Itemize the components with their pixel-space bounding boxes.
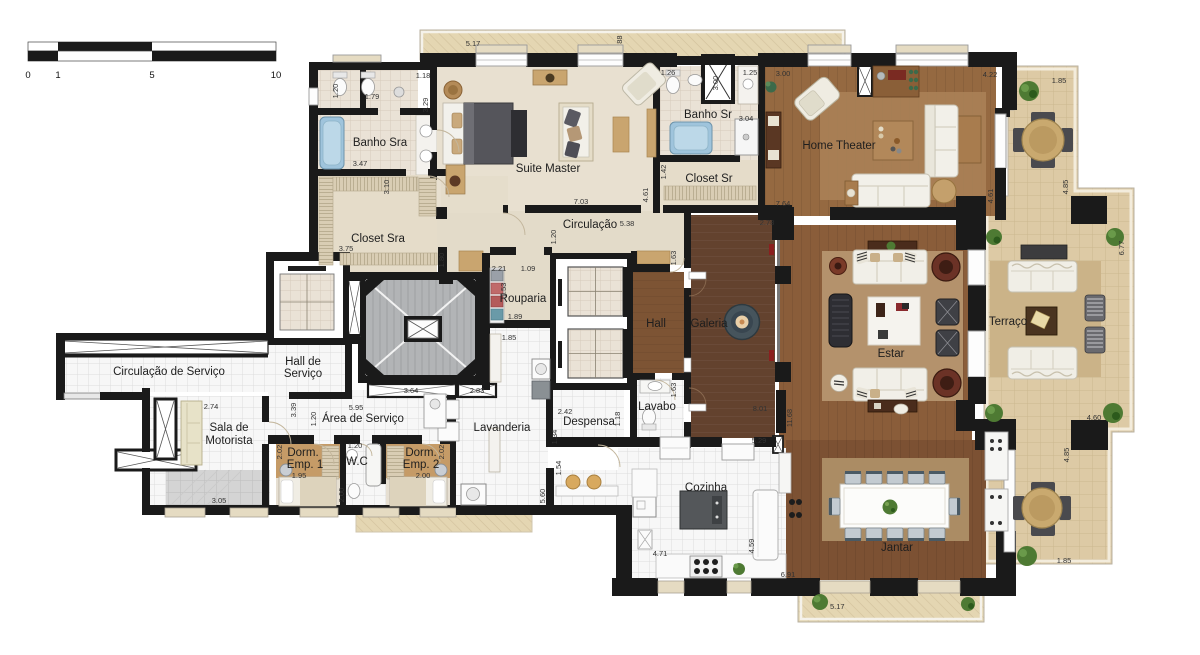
svg-text:1.34: 1.34	[550, 430, 559, 445]
svg-text:1.63: 1.63	[669, 251, 678, 266]
svg-text:2.21: 2.21	[492, 264, 507, 273]
svg-text:Banho Sr: Banho Sr	[684, 109, 732, 121]
svg-text:Dorm.: Dorm.	[405, 447, 436, 459]
svg-text:1.09: 1.09	[521, 264, 536, 273]
svg-text:5: 5	[149, 70, 154, 81]
svg-text:1.53: 1.53	[499, 283, 508, 298]
svg-text:5.95: 5.95	[349, 403, 364, 412]
svg-text:1.18: 1.18	[613, 412, 622, 427]
svg-text:2.78: 2.78	[760, 218, 775, 227]
svg-text:2.42: 2.42	[558, 407, 573, 416]
svg-text:4.61: 4.61	[986, 189, 995, 204]
svg-text:3.75: 3.75	[339, 244, 354, 253]
svg-text:5.38: 5.38	[620, 219, 635, 228]
svg-text:Dorm.: Dorm.	[287, 447, 318, 459]
svg-text:Hall: Hall	[646, 318, 666, 330]
svg-text:1.54: 1.54	[554, 461, 563, 476]
svg-text:1: 1	[55, 70, 60, 81]
svg-text:1.89: 1.89	[508, 312, 523, 321]
svg-text:3.04: 3.04	[739, 114, 754, 123]
svg-text:1.20: 1.20	[348, 441, 363, 450]
svg-text:Jantar: Jantar	[881, 542, 913, 554]
svg-text:7.03: 7.03	[574, 197, 589, 206]
svg-text:1.85: 1.85	[1052, 76, 1067, 85]
svg-text:4.22: 4.22	[983, 70, 998, 79]
svg-text:2.00: 2.00	[416, 471, 431, 480]
svg-text:Cozinha: Cozinha	[685, 482, 728, 494]
svg-text:Sala de: Sala de	[209, 422, 248, 434]
svg-text:3.00: 3.00	[776, 69, 791, 78]
svg-text:10: 10	[271, 70, 282, 81]
svg-text:1.20: 1.20	[331, 84, 340, 99]
svg-text:Lavabo: Lavabo	[638, 401, 676, 413]
svg-text:8.01: 8.01	[753, 404, 768, 413]
svg-text:6.91: 6.91	[781, 570, 796, 579]
svg-text:5.60: 5.60	[538, 489, 547, 504]
svg-text:1.95: 1.95	[292, 471, 307, 480]
svg-text:4.59: 4.59	[747, 539, 756, 554]
svg-text:5.17: 5.17	[830, 602, 845, 611]
svg-text:Área de Serviço: Área de Serviço	[322, 412, 404, 425]
svg-text:5.17: 5.17	[466, 39, 481, 48]
svg-text:0: 0	[25, 70, 30, 81]
svg-text:2.00: 2.00	[337, 488, 346, 503]
svg-text:1.18: 1.18	[416, 71, 431, 80]
svg-text:Circulação de Serviço: Circulação de Serviço	[113, 366, 225, 378]
svg-text:2.02: 2.02	[437, 445, 446, 460]
svg-text:Closet Sr: Closet Sr	[685, 173, 732, 185]
svg-text:Despensa: Despensa	[563, 416, 615, 428]
svg-text:1.85: 1.85	[502, 333, 517, 342]
svg-text:1.20: 1.20	[549, 230, 558, 245]
svg-text:3.47: 3.47	[353, 159, 368, 168]
svg-text:1.79: 1.79	[365, 92, 380, 101]
svg-text:4.85: 4.85	[1062, 448, 1071, 463]
svg-text:2.02: 2.02	[275, 445, 284, 460]
svg-text:7.64: 7.64	[776, 199, 791, 208]
svg-text:3.29: 3.29	[421, 98, 430, 113]
svg-text:5.29: 5.29	[752, 436, 767, 445]
svg-text:4.71: 4.71	[653, 549, 668, 558]
svg-text:4.85: 4.85	[1061, 180, 1070, 195]
svg-text:6.77: 6.77	[1117, 241, 1126, 256]
svg-text:4.61: 4.61	[641, 188, 650, 203]
svg-text:Serviço: Serviço	[284, 368, 322, 380]
svg-text:2.74: 2.74	[204, 402, 219, 411]
svg-text:Home Theater: Home Theater	[802, 140, 875, 152]
svg-text:4.60: 4.60	[1087, 413, 1102, 422]
svg-text:Banho Sra: Banho Sra	[353, 137, 408, 149]
svg-text:Estar: Estar	[878, 348, 905, 360]
svg-text:Emp. 2: Emp. 2	[403, 459, 439, 471]
svg-text:2.83: 2.83	[470, 386, 485, 395]
svg-text:1.25: 1.25	[743, 68, 758, 77]
svg-text:Hall de: Hall de	[285, 356, 321, 368]
svg-text:1.26: 1.26	[661, 68, 676, 77]
svg-text:11.68: 11.68	[785, 409, 794, 427]
svg-text:1.42: 1.42	[659, 165, 668, 180]
svg-text:Terraço: Terraço	[989, 316, 1027, 328]
svg-text:Motorista: Motorista	[205, 435, 253, 447]
svg-text:1.63: 1.63	[669, 383, 678, 398]
svg-text:3.39: 3.39	[289, 403, 298, 418]
svg-text:Circulação: Circulação	[563, 219, 617, 231]
svg-text:Lavanderia: Lavanderia	[474, 422, 532, 434]
svg-text:1.20: 1.20	[309, 412, 318, 427]
svg-text:Galeria: Galeria	[690, 318, 728, 330]
svg-text:1.80: 1.80	[437, 253, 446, 268]
svg-text:3.10: 3.10	[382, 180, 391, 195]
svg-text:3.00: 3.00	[711, 76, 720, 91]
svg-text:W.C: W.C	[346, 456, 368, 468]
svg-text:3.05: 3.05	[212, 496, 227, 505]
svg-text:3.64: 3.64	[404, 386, 419, 395]
svg-text:1.85: 1.85	[1057, 556, 1072, 565]
svg-text:Suite Master: Suite Master	[516, 163, 581, 175]
svg-text:Closet Sra: Closet Sra	[351, 233, 405, 245]
svg-text:Emp. 1: Emp. 1	[287, 459, 323, 471]
